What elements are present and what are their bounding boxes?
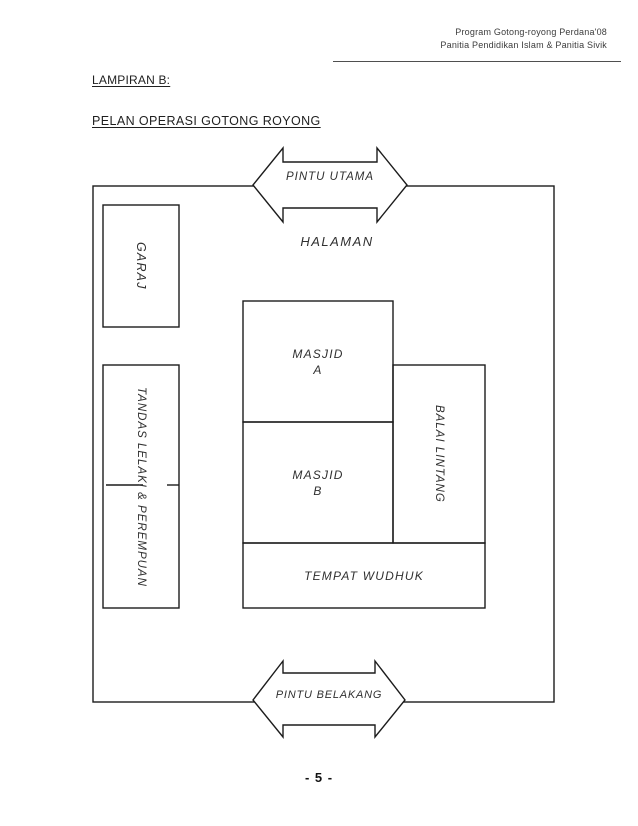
back-gate-arrow — [253, 661, 405, 737]
tandas-room — [103, 365, 179, 608]
tempat-wudhuk-room — [243, 543, 485, 608]
main-gate-arrow — [253, 148, 407, 222]
masjid-a-room — [243, 301, 393, 422]
balai-lintang-room — [393, 365, 485, 543]
garaj-room — [103, 205, 179, 327]
page-number: - 5 - — [0, 770, 638, 785]
document-page: Program Gotong-royong Perdana'08 Panitia… — [0, 0, 638, 826]
floor-plan-diagram — [0, 0, 638, 826]
masjid-b-room — [243, 422, 393, 543]
